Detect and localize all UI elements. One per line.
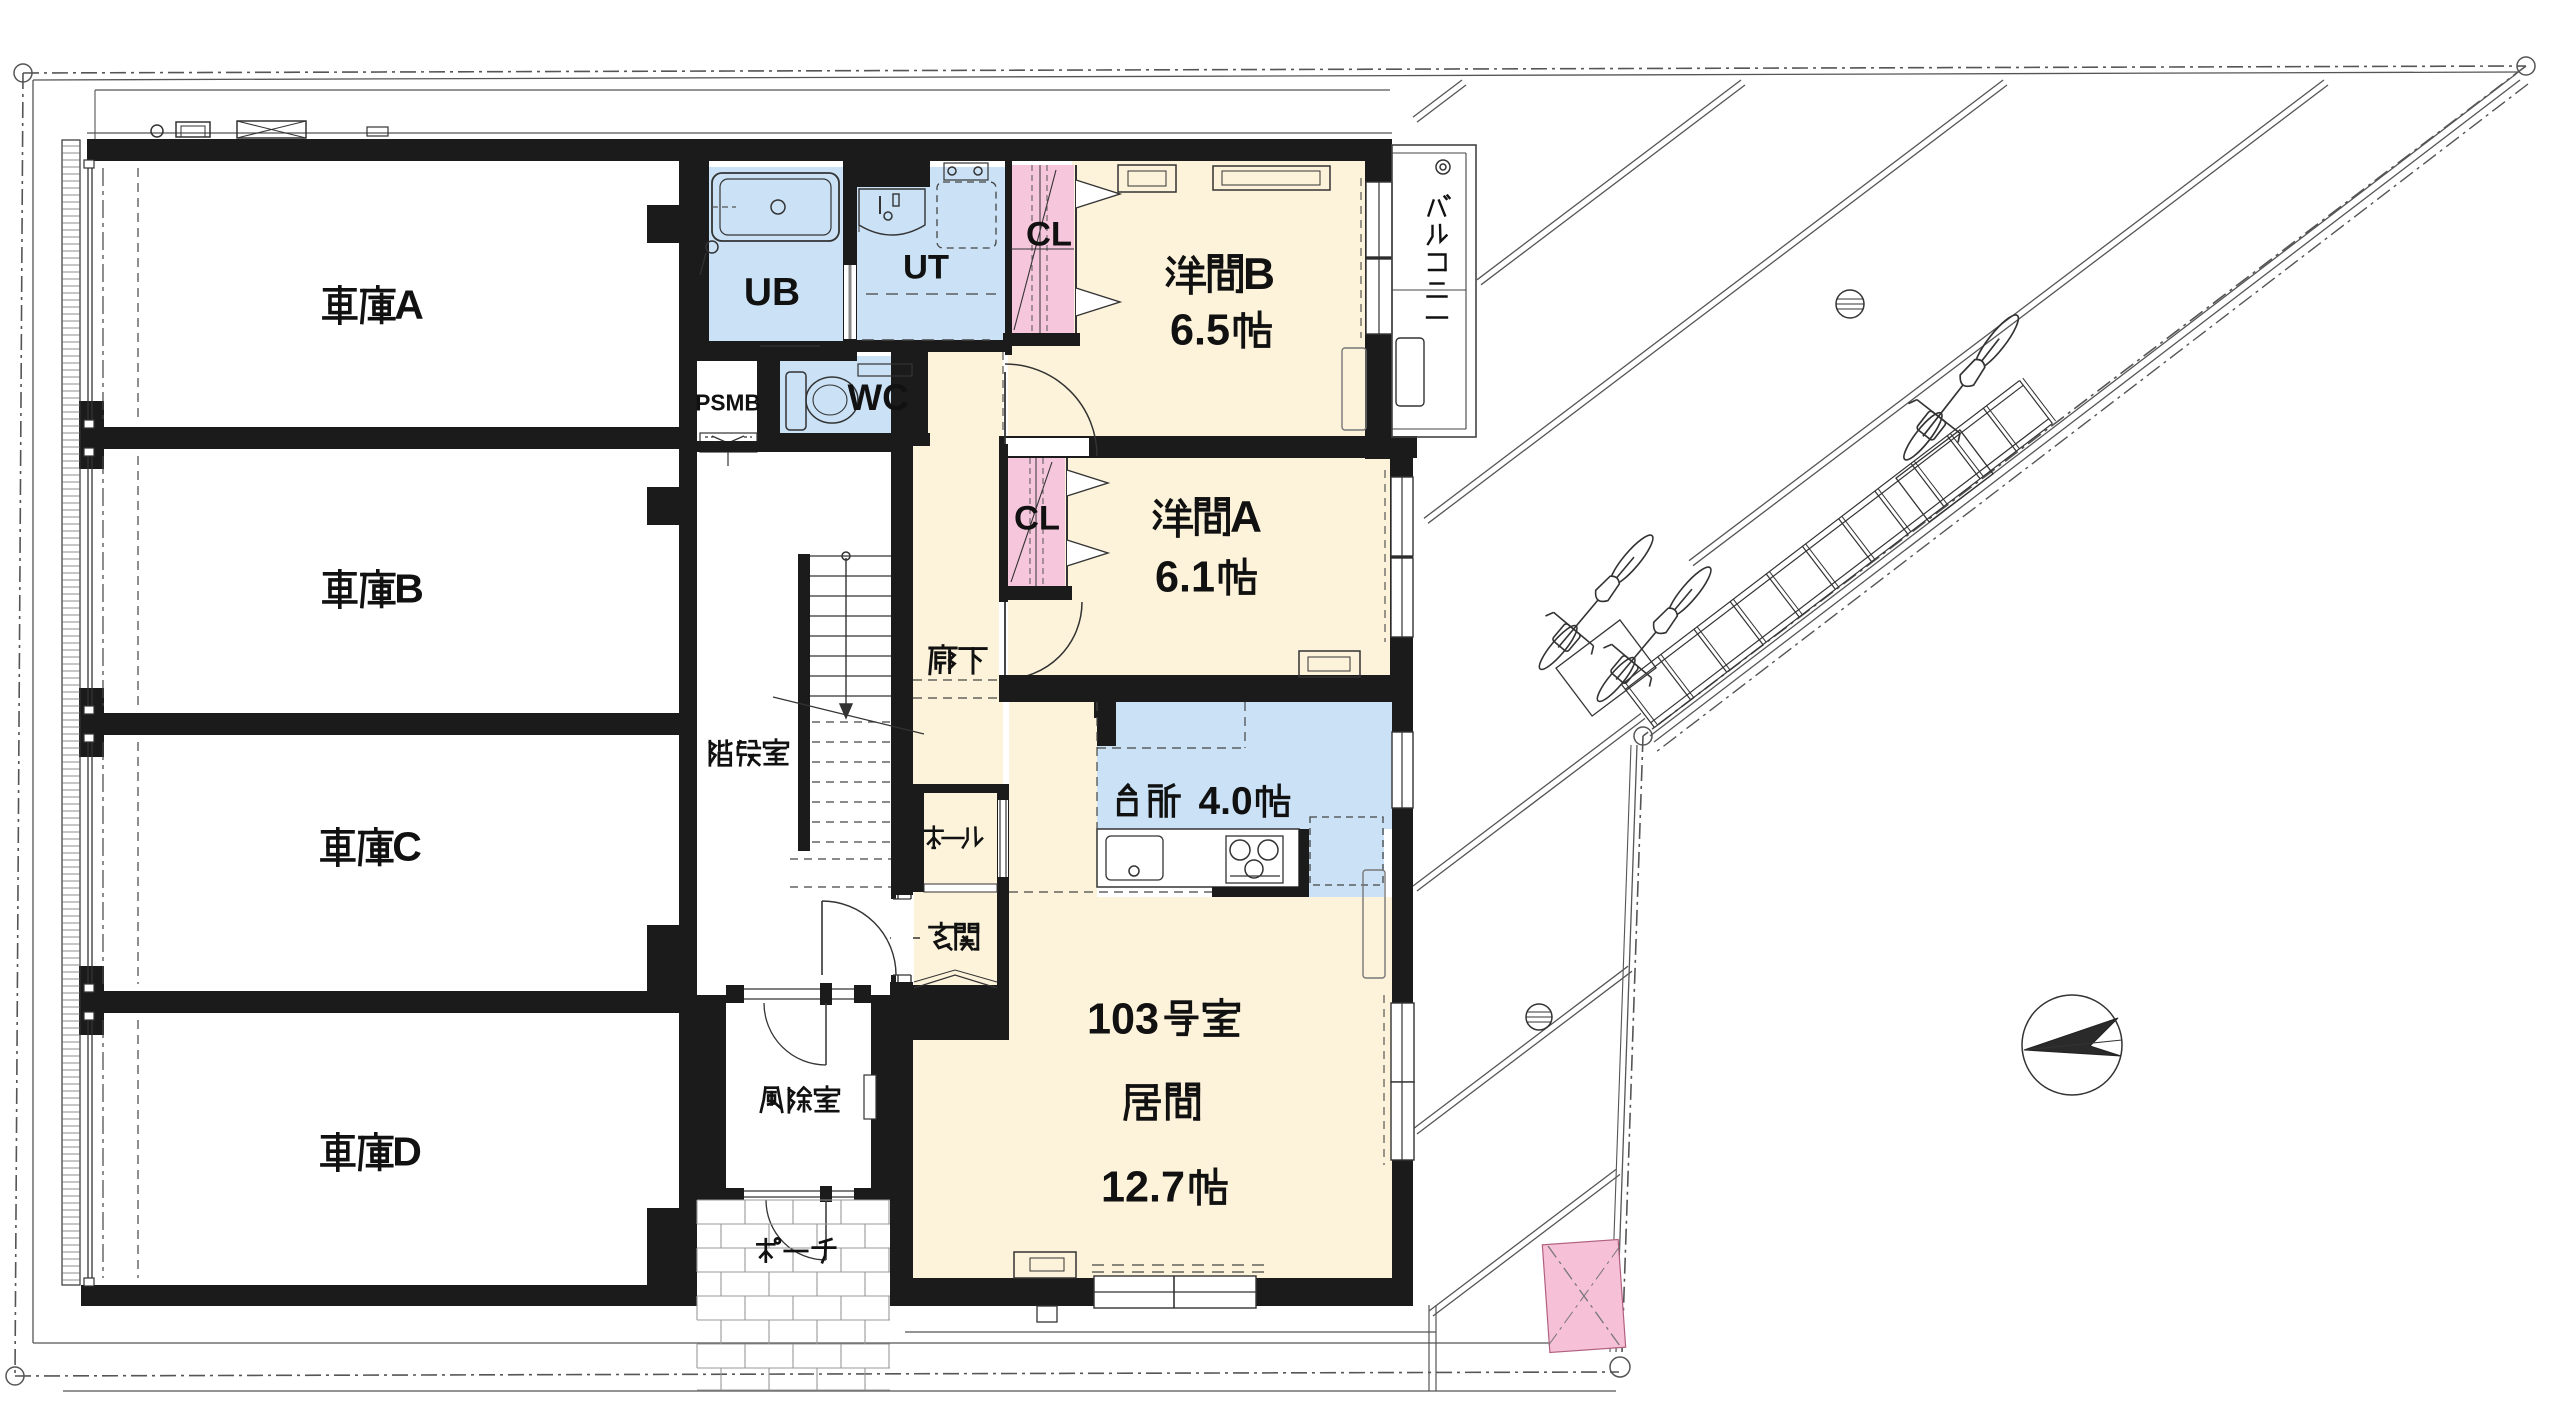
svg-text:UT: UT (903, 249, 949, 287)
svg-text:UB: UB (744, 271, 800, 314)
svg-text:CL: CL (1026, 216, 1072, 254)
svg-text:4.0: 4.0 (1199, 780, 1253, 823)
svg-text:103: 103 (1087, 995, 1159, 1043)
svg-text:6.1: 6.1 (1155, 553, 1215, 601)
svg-text:A: A (394, 282, 424, 328)
svg-text:CL: CL (1014, 500, 1060, 538)
svg-text:A: A (1230, 493, 1262, 542)
svg-text:6.5: 6.5 (1170, 306, 1230, 354)
svg-text:D: D (392, 1129, 422, 1175)
svg-text:WC: WC (847, 377, 908, 418)
svg-text:PSMB: PSMB (695, 390, 761, 416)
svg-text:12.7: 12.7 (1101, 1163, 1185, 1211)
svg-text:B: B (394, 566, 424, 612)
svg-text:B: B (1243, 250, 1275, 299)
svg-text:C: C (392, 824, 422, 870)
